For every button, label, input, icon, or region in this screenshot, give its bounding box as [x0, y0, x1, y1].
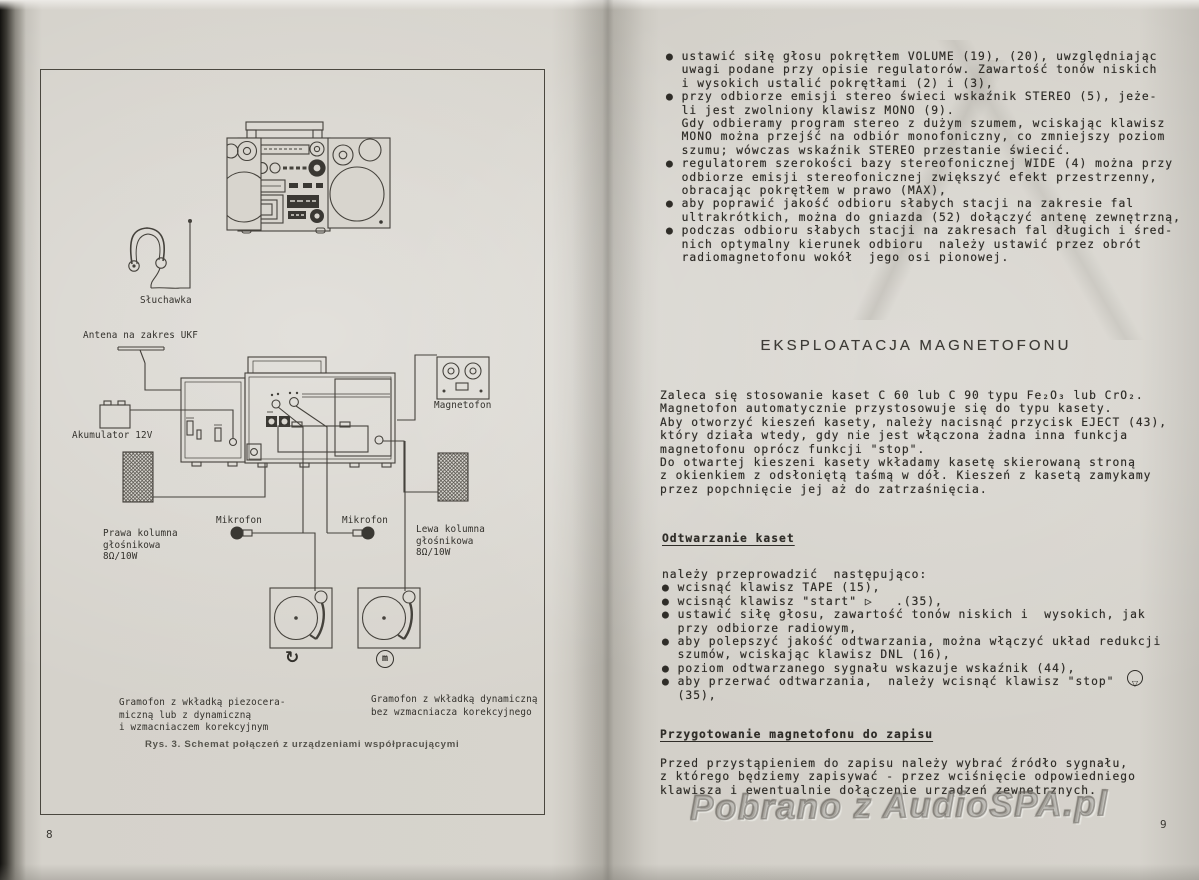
- section-heading: EKSPLOATACJA MAGNETOFONU: [660, 337, 1172, 354]
- text-line: Do otwartej kieszeni kasety wkładamy kas…: [660, 456, 1167, 469]
- text-line: przy odbiorze radiowym,: [662, 622, 1161, 635]
- page-bottom-edge: [0, 864, 1199, 880]
- label-line: Prawa kolumna: [103, 528, 178, 540]
- label-microphone-2: Mikrofon: [342, 515, 388, 527]
- label-turntable-dynamic: Gramofon z wkładką dynamicznąbez wzmacni…: [371, 669, 538, 719]
- label-line: bez wzmacniacza korekcyjnego: [371, 707, 538, 720]
- label-line: Gramofon z wkładką dynamiczną: [371, 694, 538, 707]
- figure-caption: Rys. 3. Schemat połączeń z urządzeniami …: [145, 739, 459, 750]
- text-line: ● aby polepszyć jakość odtwarzania, możn…: [662, 635, 1161, 648]
- label-microphone-1: Mikrofon: [216, 515, 262, 527]
- text-line: uwagi podane przy opisie regulatorów. Za…: [666, 63, 1181, 76]
- label-line: Gramofon z wkładką piezocera-: [119, 697, 286, 710]
- page-number-left: 8: [46, 828, 53, 841]
- text-line: który działa wtedy, gdy nie jest włączon…: [660, 429, 1167, 442]
- text-line: Przed przystąpieniem do zapisu należy wy…: [660, 757, 1136, 770]
- label-line: miczną lub z dynamiczną: [119, 710, 286, 723]
- label-line: głośnikowa: [103, 540, 178, 552]
- watermark: Pobrano z AudioSPA.pl: [690, 784, 1160, 829]
- text-line: li jest zwolniony klawisz MONO (9).: [666, 104, 1181, 117]
- scanned-manual-spread: { "page_left": { "page_number": "8", "ca…: [0, 0, 1199, 880]
- text-line: szumu; wówczas wskaźnik STEREO przestani…: [666, 144, 1181, 157]
- label-headphones: Słuchawka: [140, 295, 192, 307]
- label-turntable-piezo: Gramofon z wkładką piezocera-miczną lub …: [119, 672, 286, 735]
- text-line: ● aby przerwać odtwarzania, należy wcisn…: [662, 675, 1161, 688]
- text-line: nich optymalny kierunek odbioru należy u…: [666, 238, 1181, 251]
- playback-bullets: należy przeprowadzić następująco:● wcisn…: [662, 568, 1161, 702]
- stop-symbol-icon: ▽: [1127, 670, 1143, 686]
- text-line: magnetofonu oprócz funkcji "stop".: [660, 443, 1167, 456]
- text-line: i wysokich ustalić pokrętłami (2) i (3),: [666, 77, 1181, 90]
- center-fold-shadow: [572, 0, 644, 880]
- label-left-speaker: Lewa kolumnagłośnikowa8Ω/10W: [416, 501, 485, 559]
- text-line: ● przy odbiorze emisji stereo świeci wsk…: [666, 90, 1181, 103]
- text-line: MONO można przejść na odbiór monofoniczn…: [666, 130, 1181, 143]
- rotation-symbol-icon: ↻: [285, 648, 299, 668]
- label-battery: Akumulator 12V: [72, 430, 152, 442]
- text-line: odbiorze emisji stereofonicznej zwiększy…: [666, 171, 1181, 184]
- tape-intro-paragraph: Zaleca się stosowanie kaset C 60 lub C 9…: [660, 389, 1167, 496]
- text-line: ultrakrótkich, można do gniazda (52) doł…: [666, 211, 1181, 224]
- text-line: ● podczas odbioru słabych stacji na zakr…: [666, 224, 1181, 237]
- text-line: ● aby poprawić jakość odbioru słabych st…: [666, 197, 1181, 210]
- text-line: Magnetofon automatycznie przystosowuje s…: [660, 402, 1167, 415]
- text-line: z okienkiem z odsłoniętą taśmą w dół. Ki…: [660, 469, 1167, 482]
- label-line: Lewa kolumna: [416, 524, 485, 536]
- text-line: należy przeprowadzić następująco:: [662, 568, 1161, 581]
- label-line: głośnikowa: [416, 536, 485, 548]
- text-line: Gdy odbieramy program stereo z dużym szu…: [666, 117, 1181, 130]
- text-line: radiomagnetofonu wokół jego osi pionowej…: [666, 251, 1181, 264]
- text-line: ● ustawić siłę głosu, zawartość tonów ni…: [662, 608, 1161, 621]
- label-right-speaker: Prawa kolumnagłośnikowa8Ω/10W: [103, 505, 178, 563]
- label-antenna: Antena na zakres UKF: [83, 330, 198, 342]
- label-line: i wzmacniaczem korekcyjnym: [119, 722, 286, 735]
- text-line: (35),: [662, 689, 1161, 702]
- subheading-playback: Odtwarzanie kaset: [662, 532, 795, 545]
- text-line: ● regulatorem szerokości bazy stereofoni…: [666, 157, 1181, 170]
- label-line: 8Ω/10W: [103, 551, 178, 563]
- text-line: Aby otworzyć kieszeń kasety, należy naci…: [660, 416, 1167, 429]
- label-line: 8Ω/10W: [416, 547, 485, 559]
- text-line: przez popchnięcie jej aż do zatrzaśnięci…: [660, 483, 1167, 496]
- radio-operation-bullets: ● ustawić siłę głosu pokrętłem VOLUME (1…: [666, 50, 1181, 265]
- page-number-right: 9: [1160, 818, 1167, 831]
- dynamic-cartridge-symbol-icon: m: [376, 650, 394, 668]
- text-line: z którego będziemy zapisywać - przez wci…: [660, 770, 1136, 783]
- text-line: ● poziom odtwarzanego sygnału wskazuje w…: [662, 662, 1161, 675]
- text-line: obracając pokrętłem w prawo (MAX),: [666, 184, 1181, 197]
- text-line: Zaleca się stosowanie kaset C 60 lub C 9…: [660, 389, 1167, 402]
- text-line: szumów, wciskając klawisz DNL (16),: [662, 648, 1161, 661]
- text-line: ● wcisnąć klawisz "start" ▷ .(35),: [662, 595, 1161, 608]
- book-spine-shadow: [0, 0, 26, 880]
- label-tape-recorder: Magnetofon: [434, 400, 491, 412]
- text-line: ● wcisnąć klawisz TAPE (15),: [662, 581, 1161, 594]
- text-line: ● ustawić siłę głosu pokrętłem VOLUME (1…: [666, 50, 1181, 63]
- subheading-record: Przygotowanie magnetofonu do zapisu: [660, 728, 933, 741]
